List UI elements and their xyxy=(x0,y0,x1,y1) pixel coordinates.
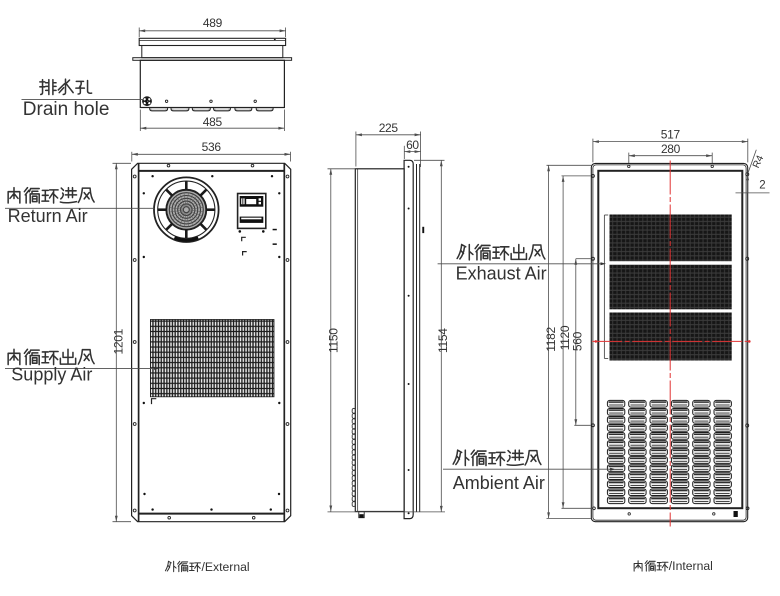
svg-text:489: 489 xyxy=(203,16,223,30)
svg-text:1182: 1182 xyxy=(544,326,558,351)
svg-text:/External: /External xyxy=(202,560,250,574)
svg-text:Return Air: Return Air xyxy=(8,206,88,226)
svg-text:560: 560 xyxy=(571,331,585,351)
svg-text:60: 60 xyxy=(406,138,419,152)
svg-text:Drain hole: Drain hole xyxy=(23,99,110,120)
svg-text:Exhaust Air: Exhaust Air xyxy=(456,263,547,283)
svg-text:280: 280 xyxy=(661,142,681,156)
svg-text:R4: R4 xyxy=(751,153,767,170)
svg-text:485: 485 xyxy=(203,115,223,129)
svg-text:536: 536 xyxy=(202,140,222,154)
svg-text:1201: 1201 xyxy=(111,328,125,354)
svg-text:Ambient Air: Ambient Air xyxy=(453,473,545,493)
svg-text:/Internal: /Internal xyxy=(669,559,713,573)
svg-text:1154: 1154 xyxy=(436,328,450,353)
svg-text:1150: 1150 xyxy=(327,328,341,353)
svg-text:225: 225 xyxy=(379,121,399,135)
svg-text:517: 517 xyxy=(661,128,681,142)
svg-text:Supply Air: Supply Air xyxy=(11,365,92,385)
svg-text:2: 2 xyxy=(759,180,765,192)
